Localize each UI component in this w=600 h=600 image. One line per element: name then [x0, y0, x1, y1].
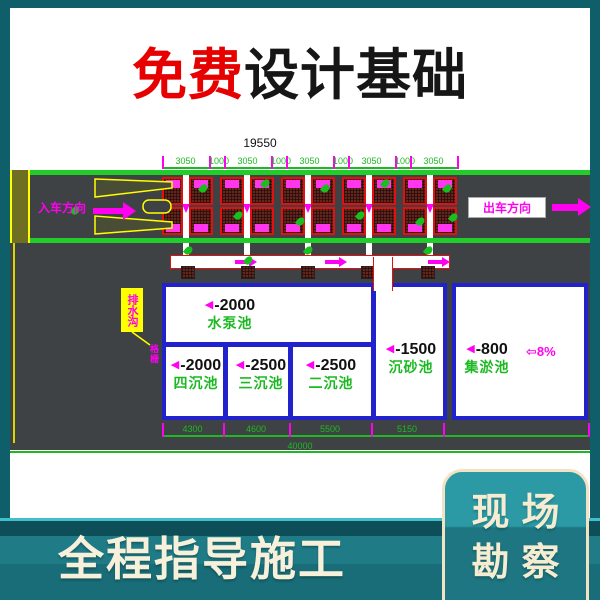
traffic-island-nose — [143, 200, 171, 213]
pool-elevation: -2000 — [214, 297, 255, 314]
pool-name: 四沉池 — [166, 375, 226, 392]
elevation-marker-icon: ◀ — [236, 359, 244, 371]
pool-name: 集淤池 — [456, 359, 518, 376]
drain-branch — [373, 257, 393, 291]
elevation-marker-icon: ◀ — [205, 299, 213, 311]
dim-segment-label: 5150 — [371, 424, 443, 434]
elevation-marker-icon: ◀ — [386, 343, 394, 355]
pool-name: 水泵池 — [170, 315, 290, 332]
exit-arrow-head-icon — [578, 198, 591, 216]
pool-name: 二沉池 — [298, 375, 364, 392]
site-survey-badge: 现场 勘察 — [442, 469, 589, 600]
pool-wall — [162, 342, 376, 347]
dim-total-line — [10, 451, 590, 453]
dim-segment-label: 5500 — [289, 424, 371, 434]
elevation-marker-icon: ◀ — [466, 343, 474, 355]
traffic-island-top — [95, 179, 172, 197]
pool-elevation: -1500 — [395, 341, 436, 358]
entry-direction-label: 入车方向 — [38, 199, 86, 216]
dim-segment-label: 4300 — [162, 424, 223, 434]
pool-name: 三沉池 — [231, 375, 291, 392]
pool-wall — [371, 283, 376, 420]
pool-label-pump: ◀-2000 水泵池 — [170, 296, 290, 332]
elevation-marker-icon: ◀ — [171, 359, 179, 371]
dim-segment-label: 4600 — [223, 424, 289, 434]
dim-tick — [443, 423, 445, 437]
pool-label-silt: ◀-800 集淤池 — [456, 340, 518, 376]
page-background: 免费设计基础 19550 305010003050100030501000305… — [0, 0, 600, 600]
pool-elevation: -2500 — [315, 357, 356, 374]
site-plan: 19550 3050100030501000305010003050100030… — [10, 8, 590, 518]
callout-label: 排水沟 — [121, 288, 143, 332]
dim-tick — [588, 423, 590, 437]
footer-slogan: 全程指导施工 — [28, 528, 376, 590]
slope-label: ⇦8% — [526, 344, 578, 360]
dim-total-bottom: 40000 — [270, 441, 330, 451]
survey-line2: 勘察 — [445, 538, 586, 588]
exit-direction-label: 出车方向 — [483, 201, 531, 215]
entry-arrow-head-icon — [123, 202, 136, 220]
pool-elevation: -2500 — [245, 357, 286, 374]
content-card: 免费设计基础 19550 305010003050100030501000305… — [10, 8, 590, 518]
pool-elevation: -800 — [476, 341, 508, 358]
pool-elevation: -2000 — [180, 357, 221, 374]
survey-line1: 现场 — [445, 488, 586, 538]
elevation-marker-icon: ◀ — [306, 359, 314, 371]
dim-line — [162, 435, 588, 437]
entry-direction-arrow-icon — [93, 208, 123, 214]
exit-direction-arrow-icon — [552, 204, 578, 211]
pool-label-2: ◀-2500 二沉池 — [298, 356, 364, 392]
callout-small-label: 格栅 — [148, 344, 161, 364]
pool-name: 沉砂池 — [378, 359, 444, 376]
pool-label-sand: ◀-1500 沉砂池 — [378, 340, 444, 376]
exit-direction-box: 出车方向 — [468, 197, 546, 218]
pool-label-3: ◀-2500 三沉池 — [231, 356, 291, 392]
pool-label-4: ◀-2000 四沉池 — [166, 356, 226, 392]
